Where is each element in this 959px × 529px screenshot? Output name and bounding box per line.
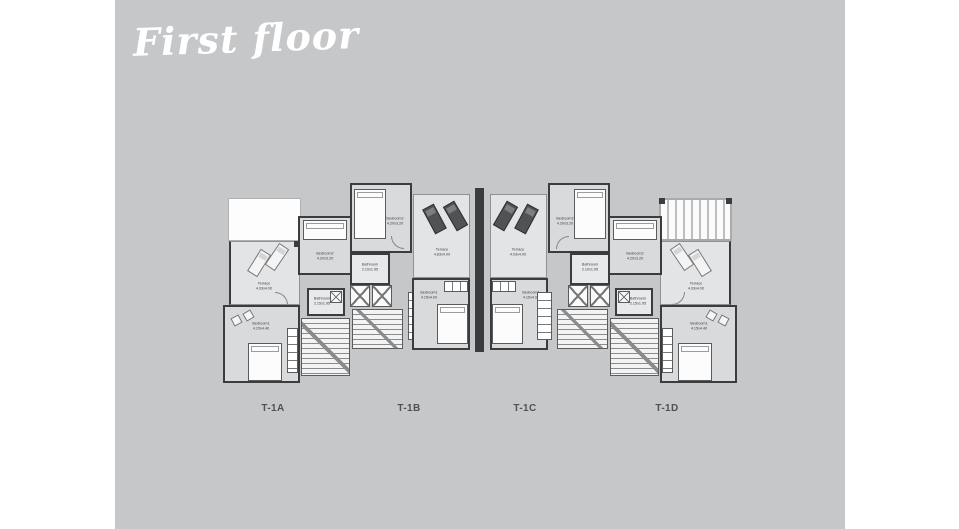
wardrobe-icon	[492, 281, 516, 292]
room-label-bathroom: Bathroom 2.15x1.95	[314, 297, 330, 307]
room-label-bedroom1: Bedroom1 4.15x4.40	[252, 322, 269, 332]
room-name: Bedroom2	[556, 217, 573, 221]
stairs-icon	[557, 309, 608, 349]
bed-icon	[613, 220, 657, 240]
room-label-terrace: Terrace 4.83x4.00	[434, 248, 450, 258]
room-label-bathroom: Bathroom 2.10x1.95	[362, 263, 378, 273]
room-name: Terrace	[436, 248, 448, 252]
stairs-icon	[301, 318, 350, 376]
room-dim: 2.15x1.95	[314, 302, 330, 307]
shower-icon	[350, 285, 370, 307]
room-name: Bedroom1	[252, 322, 269, 326]
room-label-terrace: Terrace 4.03x4.00	[510, 248, 526, 258]
room-dim: 4.03x4.00	[256, 287, 272, 292]
room-dim: 4.20x3.20	[386, 222, 403, 227]
room-name: Bathroom	[314, 297, 330, 301]
pergola-post-icon	[659, 198, 665, 204]
room-name: Bedroom2	[626, 252, 643, 256]
room-name: Bathroom	[362, 263, 378, 267]
plan-canvas: First floor Terrace 4.03x4.00 Bedroom2 4…	[115, 0, 845, 529]
wardrobe-icon	[662, 328, 673, 373]
room-dim: 4.15x4.40	[252, 327, 269, 332]
shower-icon	[618, 291, 630, 303]
shower-icon	[330, 291, 342, 303]
room-label-bedroom1: Bedroom1 4.15x4.00	[420, 291, 437, 301]
terrace-room	[490, 194, 547, 278]
terrace-room	[413, 194, 470, 278]
wardrobe-icon	[287, 328, 298, 373]
room-label-bathroom: Bathroom 2.10x1.95	[582, 263, 598, 273]
room-label-terrace: Terrace 4.03x4.00	[256, 282, 272, 292]
room-dim: 4.20x3.20	[316, 257, 333, 262]
room-dim: 4.20x3.20	[626, 257, 643, 262]
room-label-bedroom2: Bedroom2 4.20x3.20	[386, 217, 403, 227]
unit-label-t1b: T-1B	[397, 403, 420, 414]
room-dim: 4.03x4.00	[688, 287, 704, 292]
room-name: Terrace	[690, 282, 702, 286]
room-dim: 2.10x1.95	[582, 268, 598, 273]
bed-icon	[574, 189, 606, 239]
bed-icon	[248, 343, 282, 381]
shower-icon	[568, 285, 588, 307]
room-name: Bedroom2	[316, 252, 333, 256]
room-dim: 4.15x4.40	[690, 327, 707, 332]
room-dim: 4.20x3.20	[556, 222, 573, 227]
room-name: Bedroom2	[386, 217, 403, 221]
room-name: Bathroom	[582, 263, 598, 267]
unit-label-t1d: T-1D	[655, 403, 678, 414]
page-title: First floor	[132, 12, 360, 65]
room-label-terrace: Terrace 4.03x4.00	[688, 282, 704, 292]
party-wall	[475, 188, 484, 352]
room-label-bedroom2: Bedroom2 4.20x3.20	[556, 217, 573, 227]
room-dim: 4.83x4.00	[434, 253, 450, 258]
room-name: Terrace	[258, 282, 270, 286]
room-dim: 4.03x4.00	[510, 253, 526, 258]
room-label-bedroom1: Bedroom1 4.15x4.40	[690, 322, 707, 332]
room-name: Bedroom1	[690, 322, 707, 326]
unit-label-t1c: T-1C	[513, 403, 536, 414]
room-name: Bathroom	[630, 297, 646, 301]
bed-icon	[354, 189, 386, 239]
room-label-bedroom2: Bedroom2 4.20x3.20	[626, 252, 643, 262]
stairs-icon	[352, 309, 403, 349]
room-dim: 4.15x4.00	[420, 296, 437, 301]
page: { "title": "First floor", "colors": { "c…	[0, 0, 959, 529]
bed-icon	[678, 343, 712, 381]
wardrobe-icon	[537, 292, 552, 340]
floor-plan: Terrace 4.03x4.00 Bedroom2 4.20x3.20 Bat…	[223, 180, 737, 385]
room-name: Terrace	[512, 248, 524, 252]
unit-label-t1a: T-1A	[261, 403, 284, 414]
room-label-bedroom2: Bedroom2 4.20x3.20	[316, 252, 333, 262]
bed-icon	[492, 304, 523, 344]
shower-icon	[372, 285, 392, 307]
bed-icon	[437, 304, 468, 344]
shower-icon	[590, 285, 610, 307]
room-label-bathroom: Bathroom 2.15x1.95	[630, 297, 646, 307]
pergola-post-icon	[726, 198, 732, 204]
pergola-roof	[659, 198, 732, 241]
bed-icon	[303, 220, 347, 240]
room-dim: 2.15x1.95	[630, 302, 646, 307]
roof-outline	[228, 198, 301, 241]
wardrobe-icon	[444, 281, 468, 292]
stairs-icon	[610, 318, 659, 376]
room-name: Bedroom1	[420, 291, 437, 295]
room-dim: 2.10x1.95	[362, 268, 378, 273]
